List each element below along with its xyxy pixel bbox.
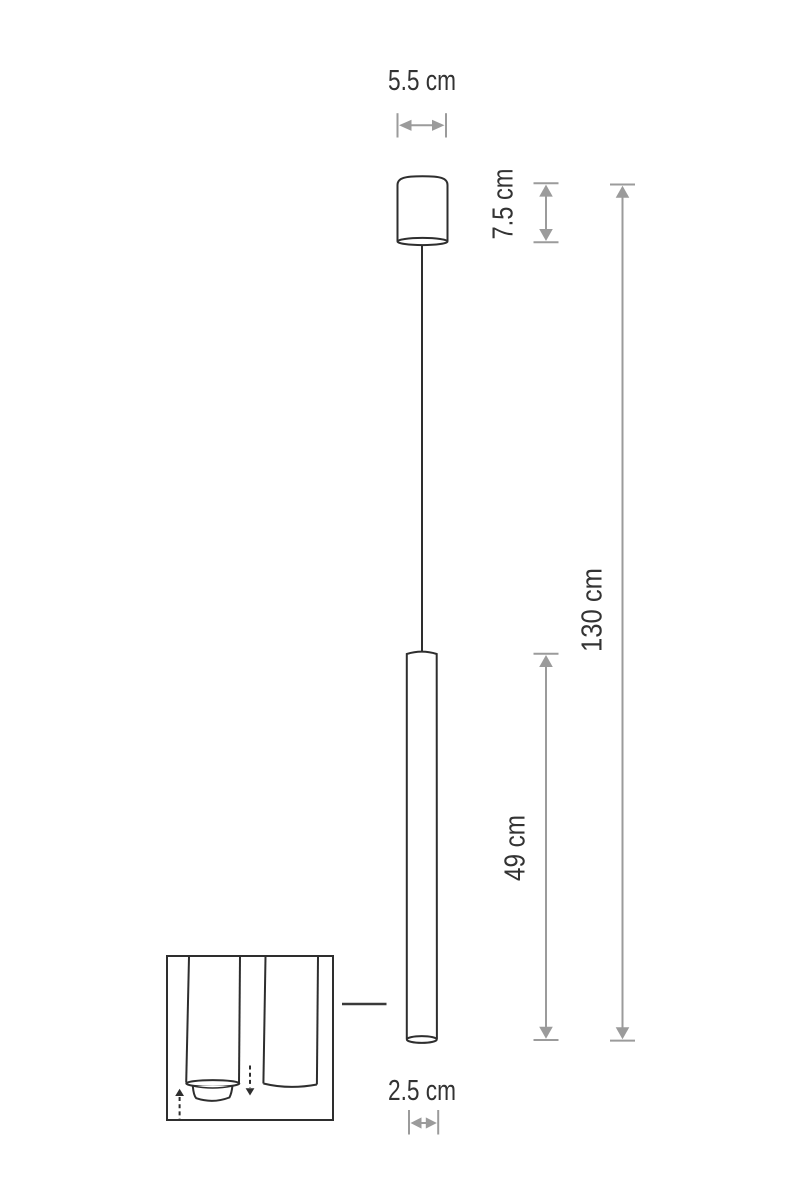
svg-text:7.5 cm: 7.5 cm xyxy=(488,169,520,240)
svg-text:49 cm: 49 cm xyxy=(500,815,532,881)
svg-text:2.5 cm: 2.5 cm xyxy=(388,1075,456,1107)
svg-text:5.5 cm: 5.5 cm xyxy=(388,65,456,97)
svg-text:130 cm: 130 cm xyxy=(577,568,609,652)
